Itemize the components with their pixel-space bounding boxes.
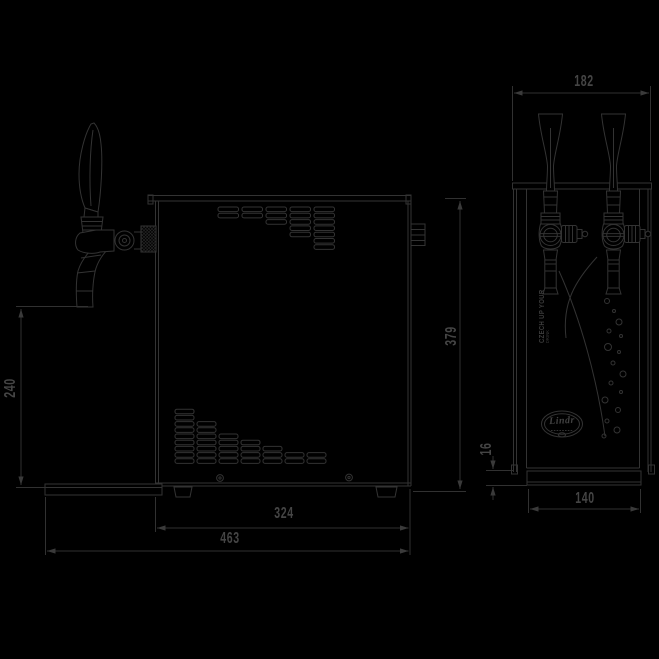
front-tap-right — [602, 114, 651, 294]
foot — [376, 487, 397, 497]
foot — [174, 487, 192, 497]
drip-tray — [45, 484, 162, 495]
side-view — [45, 123, 425, 497]
panel-screw — [217, 474, 353, 481]
front-tap-left — [539, 114, 588, 294]
dim-label-182: 182 — [574, 73, 594, 91]
side-vents-top — [218, 207, 335, 249]
decal-bubbles — [602, 299, 626, 439]
dim-label-240: 240 — [2, 378, 20, 398]
decal-slogan-line2: DRINK — [546, 290, 551, 343]
side-vents-bottom — [175, 409, 326, 463]
brand-logo-text: Lindr — [549, 415, 575, 427]
front-view — [512, 114, 655, 485]
dim-label-16: 16 — [478, 442, 496, 455]
dim-label-379: 379 — [443, 326, 461, 346]
technical-drawing-canvas: 240 379 324 463 182 16 140 CZECH UP YOUR… — [0, 0, 659, 659]
base-plinth — [527, 471, 641, 485]
dim-label-324: 324 — [274, 505, 294, 523]
beer-inlet-connector — [411, 224, 425, 246]
drawing-linework — [0, 0, 659, 659]
decal-swoosh — [559, 257, 605, 436]
dim-label-463: 463 — [220, 530, 240, 548]
dim-label-140: 140 — [575, 490, 595, 508]
side-tap — [76, 123, 156, 307]
decal-slogan: CZECH UP YOUR DRINK — [539, 280, 551, 343]
